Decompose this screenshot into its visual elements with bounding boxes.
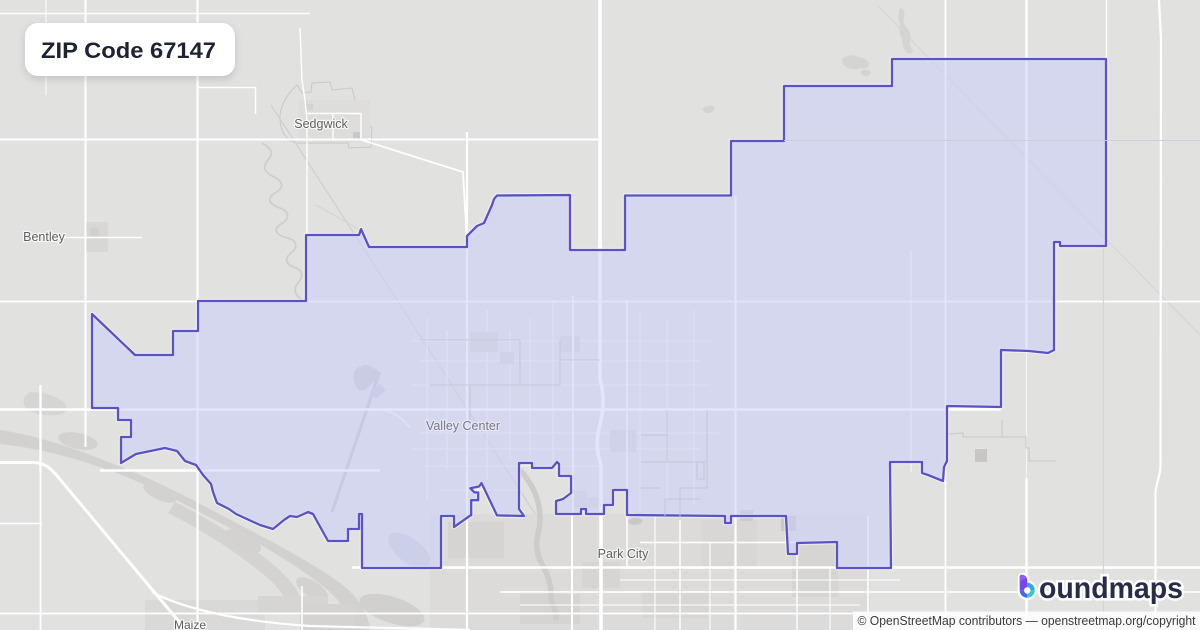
svg-text:Maize: Maize: [174, 618, 206, 630]
svg-text:Park City: Park City: [598, 547, 649, 561]
svg-text:© OpenStreetMap contributors —: © OpenStreetMap contributors — openstree…: [858, 613, 1196, 628]
svg-text:oundmaps: oundmaps: [1039, 572, 1183, 605]
svg-text:Bentley: Bentley: [23, 230, 65, 244]
svg-text:Valley Center: Valley Center: [426, 419, 500, 433]
svg-text:Sedgwick: Sedgwick: [294, 117, 348, 131]
svg-text:ZIP Code 67147: ZIP Code 67147: [41, 38, 216, 63]
